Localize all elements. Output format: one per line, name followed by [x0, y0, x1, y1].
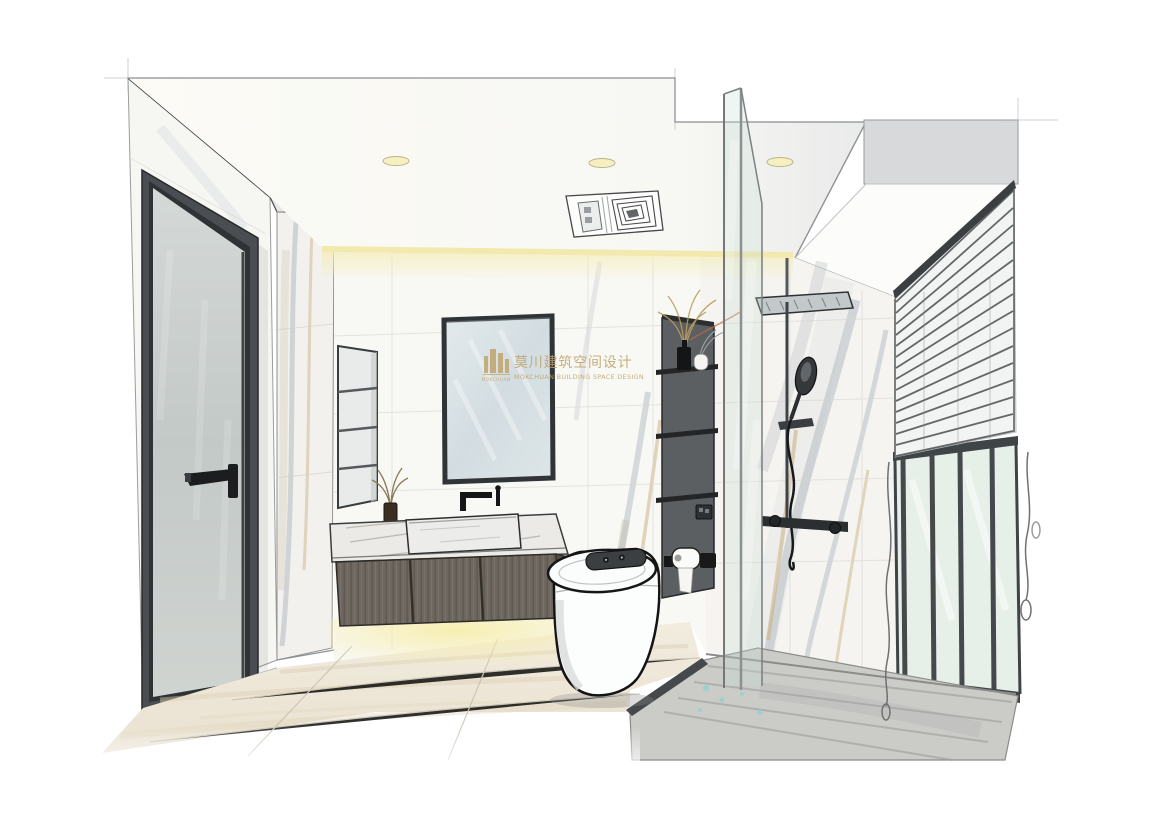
window: [888, 436, 1020, 703]
ceiling-vent-unit: [566, 191, 663, 237]
rendering-canvas: MOKCHUAN 莫川建筑空间设计 MOKCHUAN BUILDING SPAC…: [0, 0, 1150, 813]
floor-fade: [95, 726, 640, 776]
vanity: [330, 514, 580, 668]
shower-glass-partition: [724, 88, 762, 690]
vanity-cabinet: [336, 554, 576, 626]
bathroom-rendering: MOKCHUAN 莫川建筑空间设计 MOKCHUAN BUILDING SPAC…: [0, 0, 1150, 813]
bathroom-door: [142, 170, 268, 714]
watermark-title-cn: 莫川建筑空间设计: [514, 355, 632, 371]
watermark-logo-text: MOKCHUAN: [482, 377, 511, 383]
power-outlet: [696, 505, 712, 519]
watermark-title-en: MOKCHUAN BUILDING SPACE DESIGN: [514, 373, 644, 381]
vessel-sink: [406, 514, 521, 554]
wall-niche-small: [338, 346, 377, 508]
vanity-mirror: [444, 316, 553, 482]
paper-sheet: [678, 568, 693, 593]
door-shadow: [258, 244, 268, 690]
